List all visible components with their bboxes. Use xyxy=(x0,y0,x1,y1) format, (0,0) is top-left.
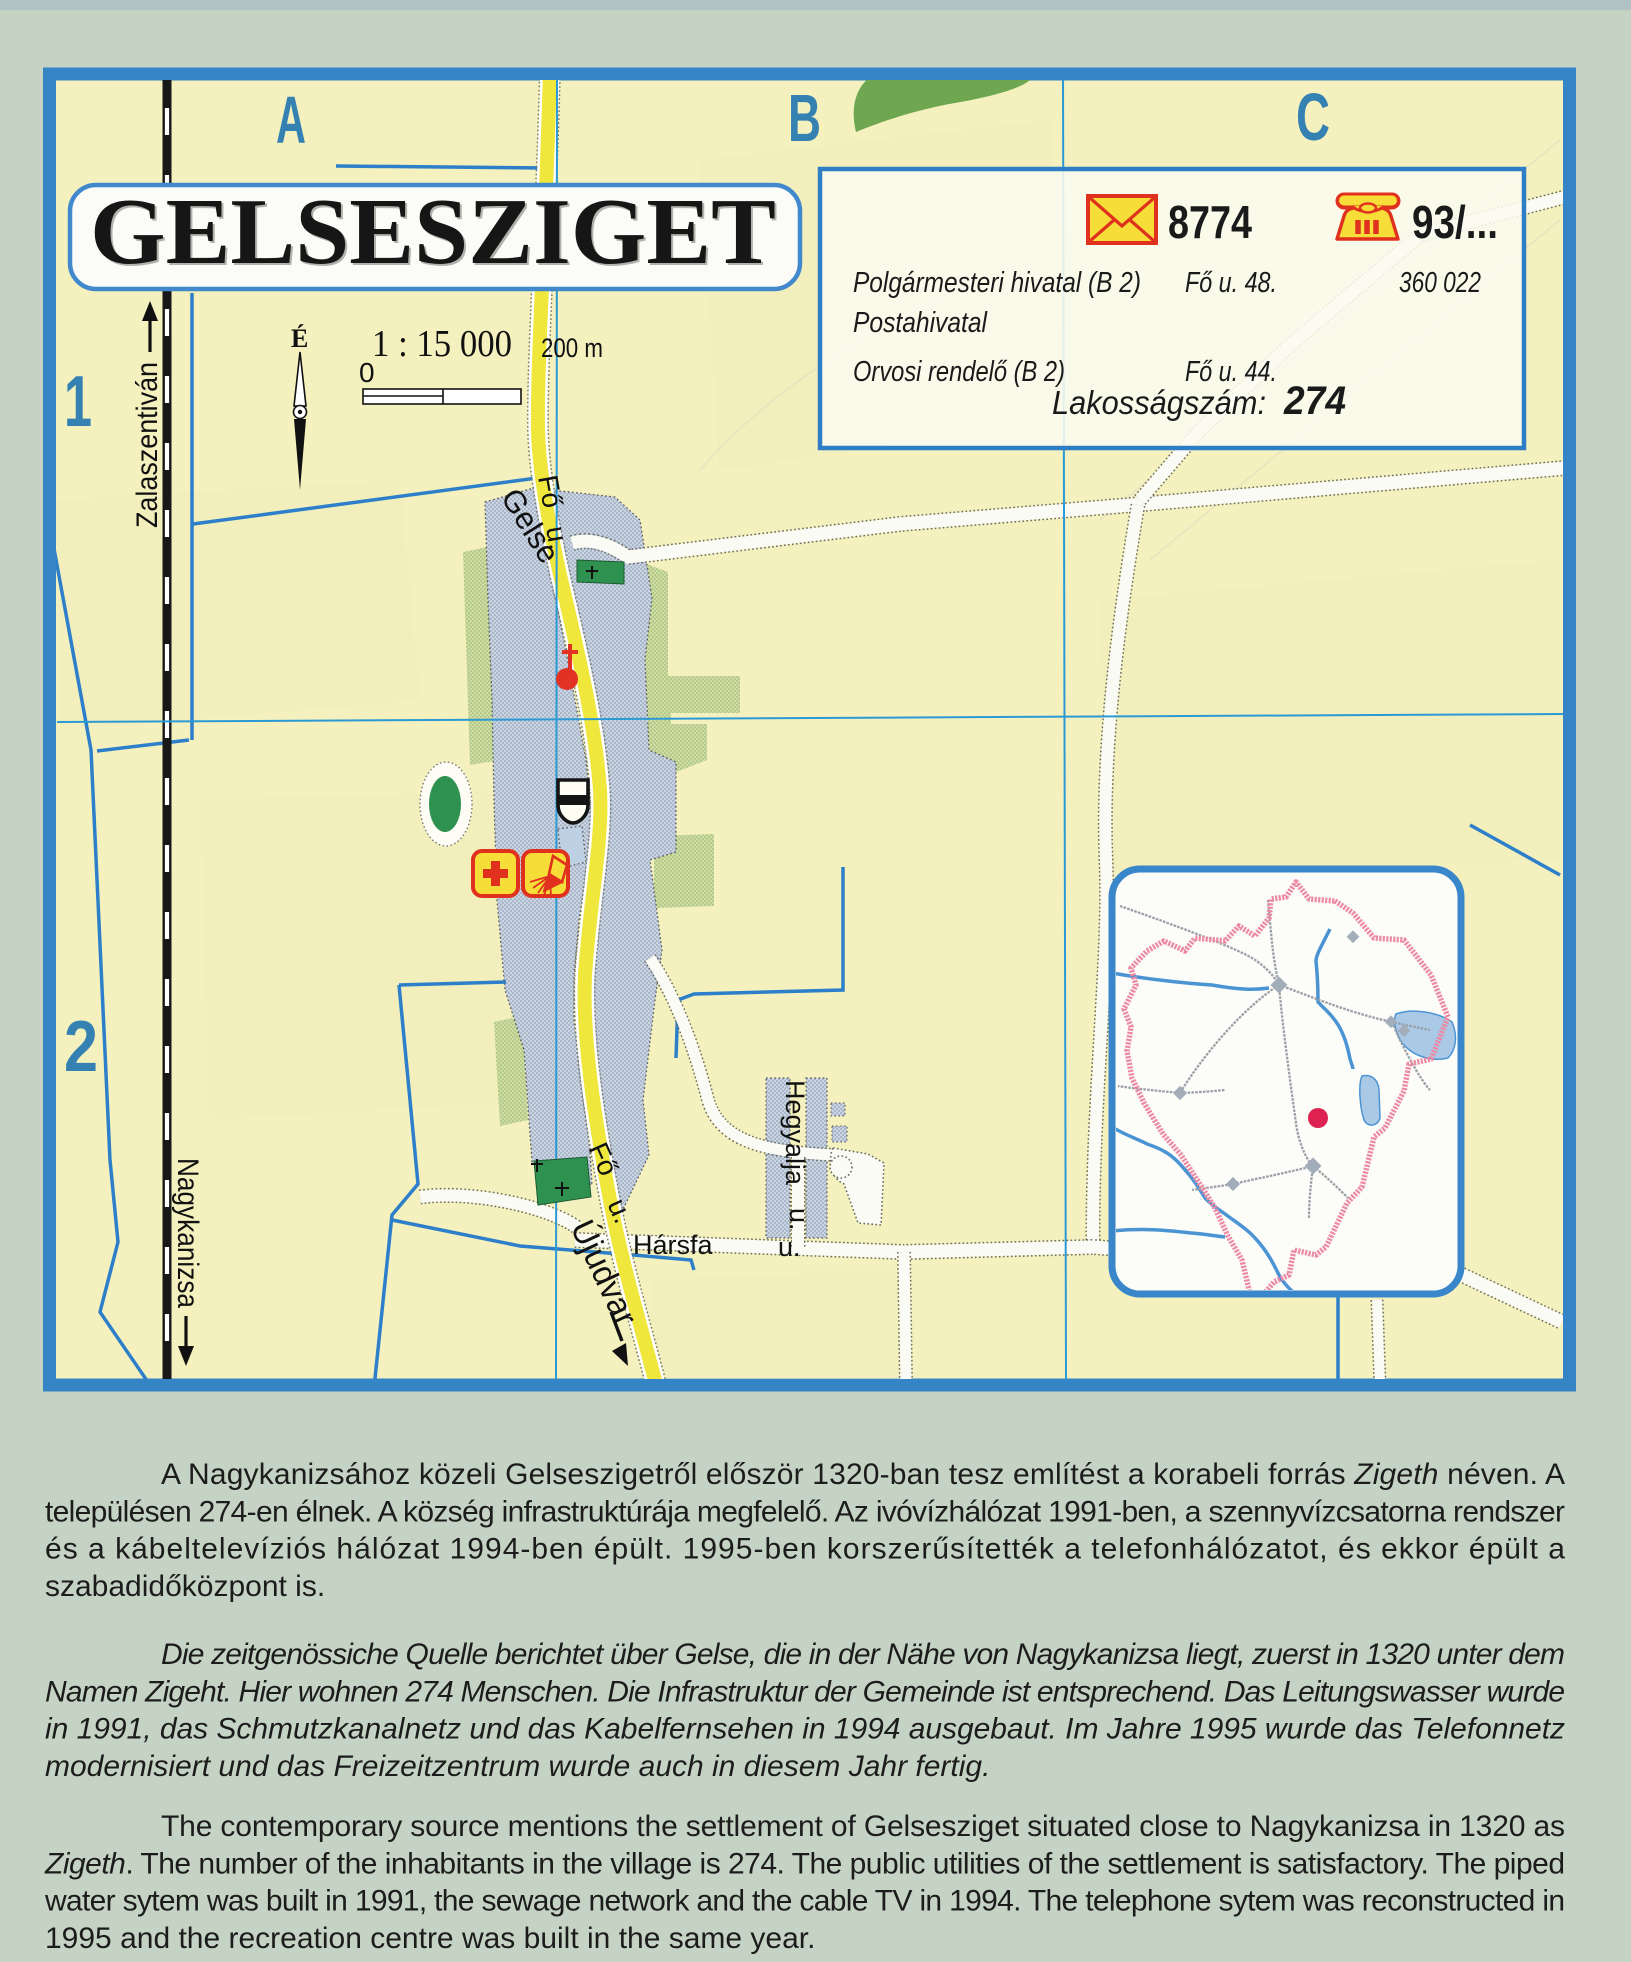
svg-text:Lakosságszám:: Lakosságszám: xyxy=(1052,384,1266,421)
svg-text:Hegyalja: Hegyalja xyxy=(780,1080,810,1186)
svg-text:É: É xyxy=(291,324,308,353)
svg-text:Fő u. 48.: Fő u. 48. xyxy=(1185,267,1277,299)
svg-text:u.: u. xyxy=(784,1208,814,1231)
svg-text:Postahivatal: Postahivatal xyxy=(853,307,988,339)
svg-text:C: C xyxy=(1296,80,1330,155)
svg-text:water sytem was built in 1991,: water sytem was built in 1991, the sewag… xyxy=(44,1885,1565,1918)
svg-text:Orvosi rendelő (B 2): Orvosi rendelő (B 2) xyxy=(853,356,1065,388)
svg-text:Polgármesteri hivatal (B 2): Polgármesteri hivatal (B 2) xyxy=(853,267,1141,299)
svg-text:szabadidőközpont is.: szabadidőközpont is. xyxy=(45,1570,325,1603)
svg-text:Namen Zigeht. Hier wohnen 274: Namen Zigeht. Hier wohnen 274 Menschen. … xyxy=(45,1675,1565,1708)
svg-text:The contemporary source mentio: The contemporary source mentions the set… xyxy=(161,1810,1565,1843)
svg-text:településen 274-en élnek. A kö: településen 274-en élnek. A község infra… xyxy=(45,1495,1565,1528)
svg-text:és a kábeltelevíziós hálózat 1: és a kábeltelevíziós hálózat 1994-ben ép… xyxy=(45,1533,1565,1566)
svg-text:1 : 15 000: 1 : 15 000 xyxy=(372,323,512,365)
svg-text:1: 1 xyxy=(64,362,92,442)
svg-text:Zalaszentiván: Zalaszentiván xyxy=(131,362,164,528)
svg-text:200 m: 200 m xyxy=(541,333,603,363)
svg-text:0: 0 xyxy=(359,357,375,388)
svg-text:Zigeth. The number of the inha: Zigeth. The number of the inhabitants in… xyxy=(44,1847,1565,1880)
svg-text:A Nagykanizsához közeli Gelses: A Nagykanizsához közeli Gelseszigetről e… xyxy=(161,1458,1565,1491)
svg-text:Hársfa: Hársfa xyxy=(633,1230,714,1260)
svg-text:1995 and the recreation centre: 1995 and the recreation centre was built… xyxy=(45,1922,815,1955)
svg-text:2: 2 xyxy=(64,1007,98,1087)
svg-text:93/...: 93/... xyxy=(1412,196,1498,248)
svg-text:modernisiert und das Freizeitz: modernisiert und das Freizeitzentrum wur… xyxy=(45,1750,990,1783)
svg-text:in 1991, das Schmutzkanalnetz: in 1991, das Schmutzkanalnetz und das Ka… xyxy=(45,1713,1565,1746)
svg-text:8774: 8774 xyxy=(1168,196,1252,248)
svg-text:Nagykanizsa: Nagykanizsa xyxy=(171,1158,204,1308)
svg-text:274: 274 xyxy=(1283,379,1346,423)
svg-text:360 022: 360 022 xyxy=(1399,267,1481,299)
svg-text:GELSESZIGET: GELSESZIGET xyxy=(90,180,776,284)
svg-text:B: B xyxy=(788,81,821,156)
svg-text:u.: u. xyxy=(778,1232,801,1262)
svg-text:A: A xyxy=(276,83,306,158)
svg-text:Die zeitgenössiche Quelle beri: Die zeitgenössiche Quelle berichtet über… xyxy=(161,1638,1565,1671)
